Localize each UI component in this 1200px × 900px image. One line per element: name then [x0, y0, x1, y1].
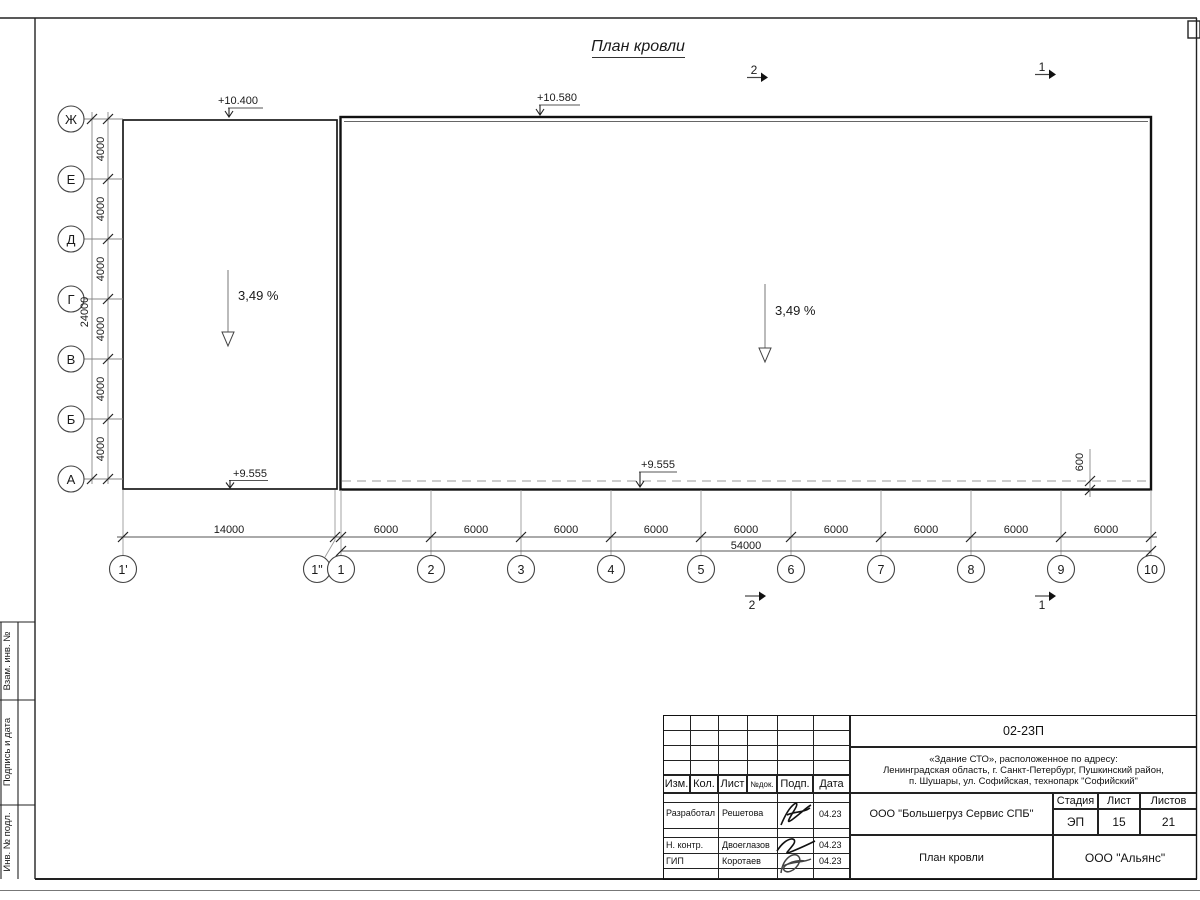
col-axis-bubbles: 1' 1" 1 2 3 4 5 6 7 8 9 10: [110, 556, 1165, 583]
building-right-outline: [341, 117, 1152, 490]
col-axis-lines: [123, 490, 1151, 557]
slope-right-label: 3,49 %: [775, 303, 816, 318]
elevation-9555-left: +9.555: [226, 468, 268, 488]
row-axis-label: Е: [67, 172, 76, 187]
col-axis-label: 1": [311, 563, 322, 577]
dim-6000: 6000: [734, 524, 758, 536]
slope-left-label: 3,49 %: [238, 288, 279, 303]
title-block: Изм. Кол. Лист №док. Подп. Дата Разработ…: [663, 715, 1197, 880]
dim-6000: 6000: [644, 524, 668, 536]
col-axis-label: 4: [608, 563, 615, 577]
section-mark-2-top: 2: [747, 63, 768, 82]
dim-6000: 6000: [464, 524, 488, 536]
row-axis-label: Г: [67, 292, 74, 307]
section-mark-1-top: 1: [1035, 60, 1056, 79]
col-axis-label: 7: [878, 563, 885, 577]
dim-6000: 6000: [914, 524, 938, 536]
dim-4000: 4000: [95, 137, 107, 161]
dim-4000: 4000: [95, 197, 107, 221]
elevation-10580: +10.580: [536, 92, 580, 115]
dim-6000: 6000: [1094, 524, 1118, 536]
svg-text:+10.400: +10.400: [218, 95, 258, 107]
slope-left: 3,49 %: [222, 270, 279, 346]
bottom-dimension-labels: 14000 6000 6000 6000 6000 6000 6000 6000…: [214, 524, 1119, 552]
section-mark-1-bottom: 1: [1035, 592, 1056, 613]
corner-stamp-box: [1188, 21, 1200, 38]
col-axis-label: 8: [968, 563, 975, 577]
dim-6000: 6000: [824, 524, 848, 536]
dim-4000: 4000: [95, 437, 107, 461]
svg-text:+9.555: +9.555: [233, 468, 267, 480]
bottom-dimension-lines: [117, 537, 1157, 551]
col-axis-label: 10: [1144, 563, 1158, 577]
svg-text:+9.555: +9.555: [641, 459, 675, 471]
side-attribute-labels: Взам. инв. № Подпись и дата Инв. № подл.: [2, 632, 13, 872]
col-axis-label: 9: [1058, 563, 1065, 577]
dim-4000: 4000: [95, 377, 107, 401]
col-axis-label: 1: [338, 563, 345, 577]
row-axis-label: А: [67, 472, 76, 487]
elevation-marks: +10.400 +10.580 +9.555 +9.555: [218, 92, 677, 488]
slope-annotations: 3,49 % 3,49 %: [222, 270, 816, 362]
section-mark-2-bottom: 2: [745, 592, 766, 613]
side-label-podpis: Подпись и дата: [2, 717, 13, 786]
dim-24000: 24000: [79, 297, 91, 328]
col-axis-label: 1': [118, 563, 127, 577]
dim-600: 600: [1074, 453, 1086, 471]
row-axis-label: Ж: [65, 112, 77, 127]
building-outlines: [123, 117, 1151, 490]
svg-text:1: 1: [1039, 60, 1046, 74]
slope-right: 3,49 %: [759, 284, 816, 362]
building-left-outline: [123, 120, 337, 489]
dim-14000: 14000: [214, 524, 245, 536]
svg-text:2: 2: [749, 598, 756, 612]
svg-text:+10.580: +10.580: [537, 92, 577, 104]
dim-6000: 6000: [374, 524, 398, 536]
col-axis-label: 5: [698, 563, 705, 577]
svg-text:2: 2: [751, 63, 758, 77]
drawing-title: План кровли: [591, 38, 685, 55]
col-axis-label: 6: [788, 563, 795, 577]
dim-4000: 4000: [95, 317, 107, 341]
elevation-9555-mid: +9.555: [636, 459, 677, 487]
col-axis-label: 3: [518, 563, 525, 577]
col-axis-label: 2: [428, 563, 435, 577]
side-label-inv: Инв. № подл.: [2, 812, 13, 871]
svg-text:1: 1: [1039, 598, 1046, 612]
dim-6000: 6000: [554, 524, 578, 536]
elevation-10400: +10.400: [218, 95, 263, 117]
side-label-vzam: Взам. инв. №: [2, 632, 13, 691]
dim-54000: 54000: [731, 540, 762, 552]
dim-4000: 4000: [95, 257, 107, 281]
dim-6000: 6000: [1004, 524, 1028, 536]
row-axis-label: В: [67, 352, 76, 367]
row-axis-label: Б: [67, 412, 76, 427]
row-axis-label: Д: [67, 232, 76, 247]
bottom-dimension-ticks: [118, 532, 1156, 556]
